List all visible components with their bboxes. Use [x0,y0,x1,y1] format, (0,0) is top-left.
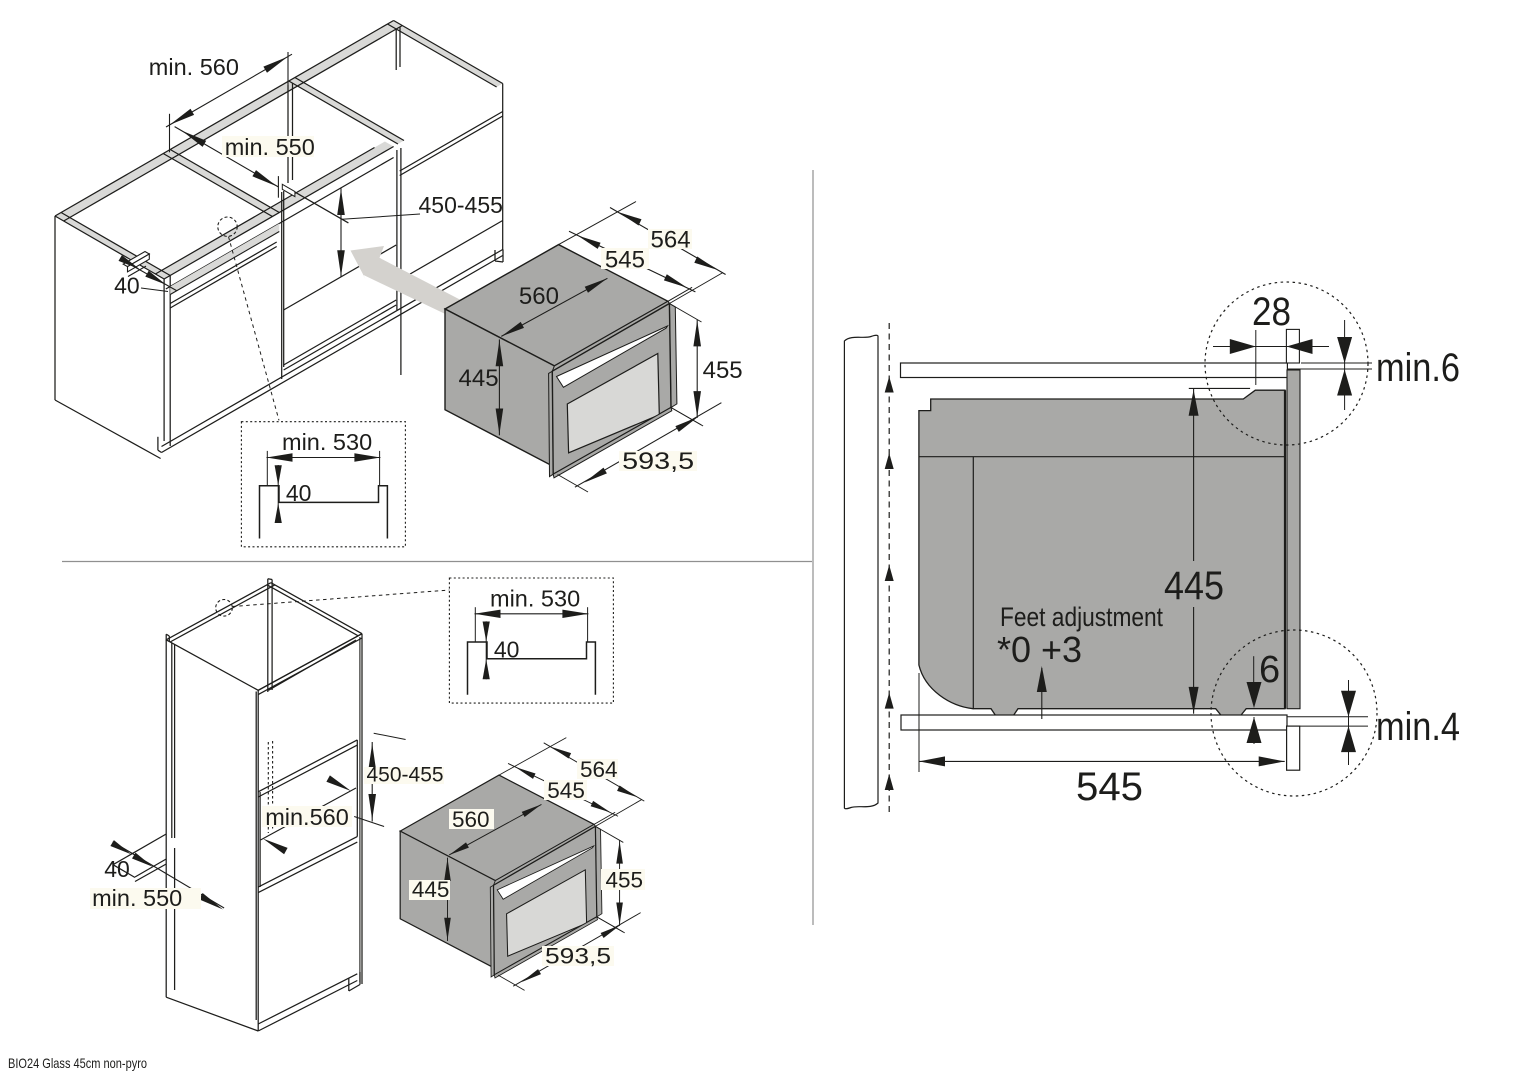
svg-text:564: 564 [651,227,691,254]
svg-text:Feet adjustment: Feet adjustment [1000,602,1163,632]
svg-text:545: 545 [605,247,645,274]
svg-text:40: 40 [104,856,130,882]
svg-text:min.560: min.560 [265,804,349,830]
svg-text:min.6: min.6 [1376,346,1460,390]
svg-text:450-455: 450-455 [367,764,444,787]
svg-text:445: 445 [1164,564,1224,608]
svg-text:BIO24 Glass 45cm non-pyro: BIO24 Glass 45cm non-pyro [8,1055,147,1071]
svg-text:min. 530: min. 530 [282,429,372,455]
svg-text:28: 28 [1252,290,1291,334]
svg-text:min. 550: min. 550 [225,134,315,160]
svg-text:445: 445 [412,877,450,902]
svg-text:455: 455 [703,357,743,384]
svg-text:593,5: 593,5 [622,448,694,475]
svg-text:40: 40 [286,480,312,506]
svg-text:564: 564 [580,757,618,782]
svg-text:min. 550: min. 550 [92,885,182,911]
svg-text:min. 560: min. 560 [149,54,239,80]
svg-text:40: 40 [114,273,140,299]
svg-text:593,5: 593,5 [545,944,611,969]
svg-text:min.4: min.4 [1376,705,1460,749]
svg-text:450-455: 450-455 [419,192,503,218]
svg-text:560: 560 [519,283,559,310]
svg-text:*0 +3: *0 +3 [997,629,1082,670]
svg-text:6: 6 [1259,649,1280,691]
svg-text:455: 455 [606,868,644,893]
svg-text:545: 545 [1076,765,1143,809]
svg-text:445: 445 [459,365,499,392]
svg-text:560: 560 [452,807,490,832]
